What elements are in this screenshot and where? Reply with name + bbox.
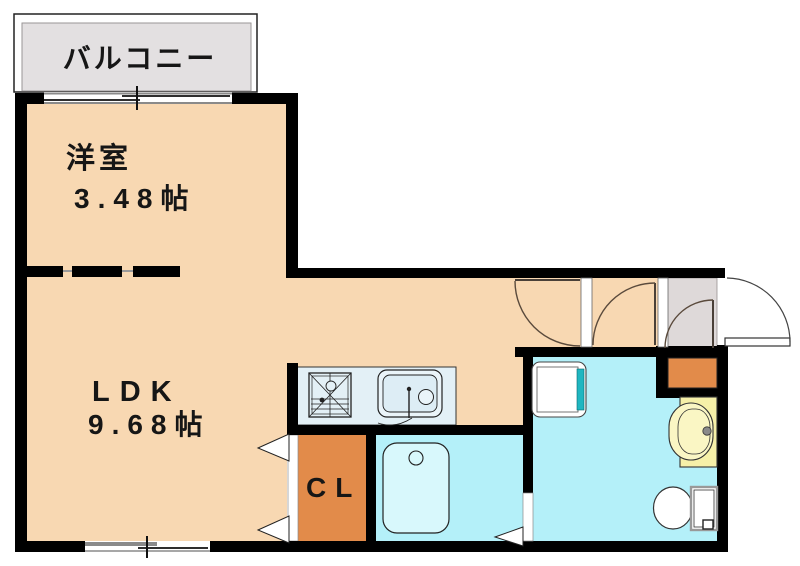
toilet-icon — [654, 487, 718, 530]
western-room-floor — [27, 95, 286, 268]
western-room-size: 3.48帖 — [74, 183, 197, 214]
ldk-size: 9.68帖 — [88, 409, 211, 440]
wall-bottom-left — [15, 541, 85, 552]
washer-pan-icon — [532, 362, 586, 417]
floor-plan-page: バルコニー 洋室 3.48帖 LDK 9.68帖 CL — [0, 0, 800, 566]
wall-top-left-stub — [15, 93, 44, 104]
wall-left — [15, 93, 27, 552]
wall-western-room-right — [286, 93, 298, 278]
balcony-label: バルコニー — [63, 43, 217, 74]
wall-closet-right — [366, 433, 376, 541]
bathtub-icon — [383, 443, 449, 533]
shoe-cabinet — [668, 358, 717, 388]
entrance-door-leaf — [725, 338, 790, 346]
floor-plan-drawing: バルコニー 洋室 3.48帖 LDK 9.68帖 CL — [0, 0, 800, 566]
hallway-pier-1 — [581, 278, 592, 347]
wall-top-main — [286, 268, 725, 278]
entrance-door-swing-arc — [727, 278, 790, 342]
entry-floor — [665, 278, 717, 348]
partition-dash-2 — [72, 266, 122, 277]
wall-below-kitchen — [287, 425, 533, 435]
bathroom-door-panel — [523, 493, 533, 541]
ldk-floor-lower — [27, 425, 287, 542]
western-room-name: 洋室 — [66, 141, 132, 175]
ldk-name: LDK — [92, 376, 182, 408]
wall-washroom-top — [515, 347, 665, 357]
closet-label: CL — [306, 472, 361, 503]
partition-dash-3 — [133, 266, 180, 277]
kitchen-sink-icon — [378, 370, 442, 425]
wall-kitchen-stub — [287, 363, 298, 425]
partition-dash-1 — [17, 266, 63, 277]
